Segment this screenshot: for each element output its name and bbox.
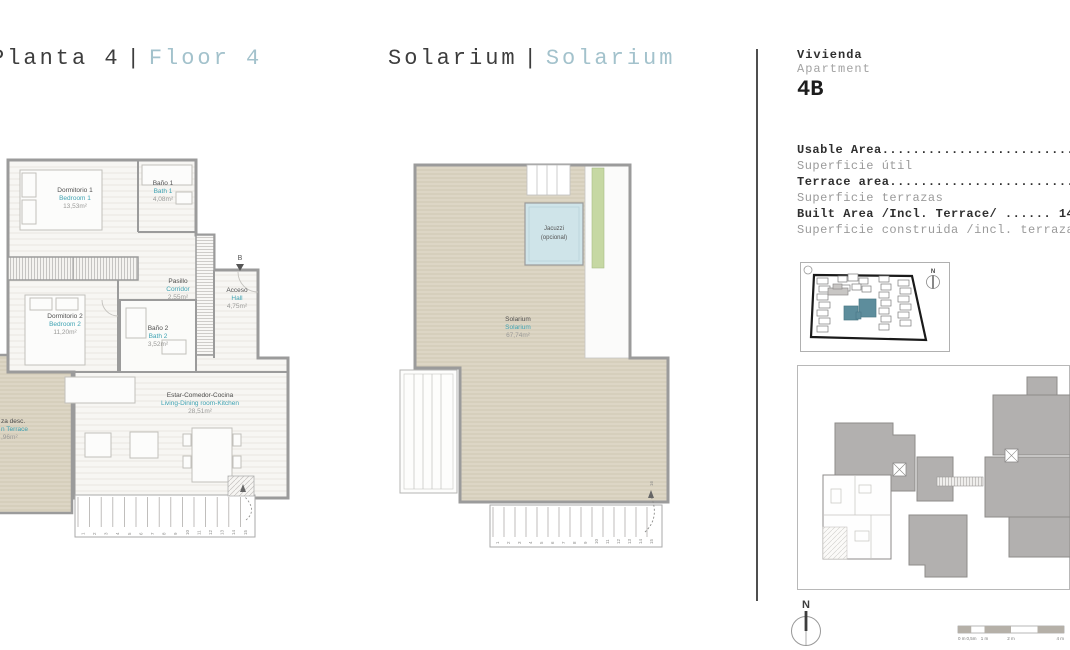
room-terrace-area: ,96m² — [1, 434, 18, 441]
unit-label-en: Apartment — [797, 62, 871, 76]
jacuzzi-label-2: (opcional) — [541, 235, 567, 241]
usable-area-sub: Superficie útil — [797, 158, 1070, 174]
title-solarium-separator: | — [518, 46, 546, 71]
svg-text:13: 13 — [220, 529, 225, 535]
svg-text:12: 12 — [616, 538, 621, 544]
room-bedroom1-area: 13,53m² — [63, 203, 88, 210]
room-bedroom1-es: Dormitorio 1 — [57, 187, 93, 194]
svg-text:14: 14 — [638, 538, 643, 544]
north-compass: N — [788, 598, 828, 650]
unit-block: Vivienda Apartment 4B — [797, 48, 871, 102]
svg-text:10: 10 — [594, 538, 599, 544]
scale-label-4: 4 m — [1056, 636, 1064, 641]
vertical-divider — [756, 49, 758, 601]
room-living-en: Living-Dining room-Kitchen — [161, 400, 239, 407]
room-hall-en: Hall — [231, 295, 243, 302]
room-living-area: 28,51m² — [188, 408, 213, 415]
room-corridor-area: 2,55m² — [168, 294, 189, 301]
solarium-en: Solarium — [505, 324, 531, 331]
jacuzzi: Jacuzzi (opcional) — [525, 203, 583, 265]
planter-strip — [592, 168, 604, 268]
room-bath2-es: Baño 2 — [148, 325, 169, 332]
title-solarium-en: Solarium — [546, 46, 676, 71]
room-living-es: Estar-Comedor-Cocina — [167, 392, 234, 399]
svg-text:15: 15 — [243, 529, 248, 535]
built-area-sub: Superficie construida /incl. terrazas — [797, 222, 1070, 238]
solarium-label: Solarium Solarium 67,74m² — [505, 316, 531, 339]
title-floor-separator: | — [121, 46, 149, 71]
svg-text:13: 13 — [627, 538, 632, 544]
unit-code: 4B — [797, 78, 871, 102]
floor-plan-drawing: Dormitorio 1 Bedroom 1 13,53m² Baño 1 Ba… — [0, 140, 320, 560]
jacuzzi-label-1: Jacuzzi — [544, 226, 564, 232]
room-bedroom2-area: 11,20m² — [53, 329, 77, 336]
title-floor-en: Floor 4 — [149, 46, 262, 71]
svg-text:11: 11 — [196, 530, 201, 535]
room-hall-area: 4,75m² — [227, 303, 248, 310]
room-bedroom2-en: Bedroom 2 — [49, 321, 81, 328]
solarium-es: Solarium — [505, 316, 531, 323]
solarium-top-stair-notch — [527, 165, 570, 195]
north-label: N — [802, 599, 810, 611]
room-bath2-area: 3,52m² — [148, 341, 169, 348]
stair-step-16: 16 — [649, 480, 654, 486]
scale-label-0: 0 m — [958, 636, 966, 641]
key-plan-highlighted-unit — [823, 475, 891, 559]
room-terrace-es: za desc. — [1, 418, 25, 425]
title-floor-es: Planta 4 — [0, 46, 121, 71]
site-plan: N — [800, 262, 950, 352]
scale-bar: 0 m 0,5m 1 m 2 m 4 m — [955, 622, 1070, 648]
unit-label-es: Vivienda — [797, 48, 871, 62]
terrace-area-sub: Superficie terrazas — [797, 190, 1070, 206]
scale-label-05: 0,5m — [966, 636, 976, 641]
room-hall-es: Acceso — [226, 287, 248, 294]
solarium-plan-drawing: Jacuzzi (opcional) Solarium Solarium 67,… — [390, 140, 680, 560]
title-solarium: Solarium|Solarium — [388, 46, 675, 71]
solarium-area: 67,74m² — [506, 332, 531, 339]
floorplan-sheet: Planta 4|Floor 4 Solarium|Solarium — [0, 0, 1070, 650]
terrace-area-line: Terrace area............................… — [797, 174, 1070, 190]
site-north-label: N — [931, 269, 935, 275]
usable-area-line: Usable Area.............................… — [797, 142, 1070, 158]
room-bedroom2-es: Dormitorio 2 — [47, 313, 83, 320]
area-table: Usable Area.............................… — [797, 142, 1070, 238]
room-bath2-en: Bath 2 — [149, 333, 168, 340]
svg-text:14: 14 — [231, 529, 236, 535]
room-bath1-en: Bath 1 — [154, 188, 173, 195]
svg-text:B: B — [238, 255, 243, 262]
pergola — [400, 370, 457, 493]
room-corridor-en: Corridor — [166, 286, 190, 293]
key-plan — [797, 365, 1070, 590]
room-bath1-es: Baño 1 — [153, 180, 174, 187]
title-solarium-es: Solarium — [388, 46, 518, 71]
scale-label-1: 1 m — [981, 636, 989, 641]
room-corridor-es: Pasillo — [168, 278, 188, 285]
scale-label-2: 2 m — [1007, 636, 1015, 641]
title-floor: Planta 4|Floor 4 — [0, 46, 262, 71]
svg-text:10: 10 — [185, 529, 190, 535]
room-bath1-area: 4,08m² — [153, 196, 174, 203]
room-bedroom1-en: Bedroom 1 — [59, 195, 91, 202]
built-area-line: Built Area /Incl. Terrace/ ...... 14 — [797, 206, 1070, 222]
svg-text:15: 15 — [649, 538, 654, 544]
svg-text:11: 11 — [605, 539, 610, 544]
svg-text:12: 12 — [208, 529, 213, 535]
room-terrace-en: n Terrace — [1, 426, 28, 433]
